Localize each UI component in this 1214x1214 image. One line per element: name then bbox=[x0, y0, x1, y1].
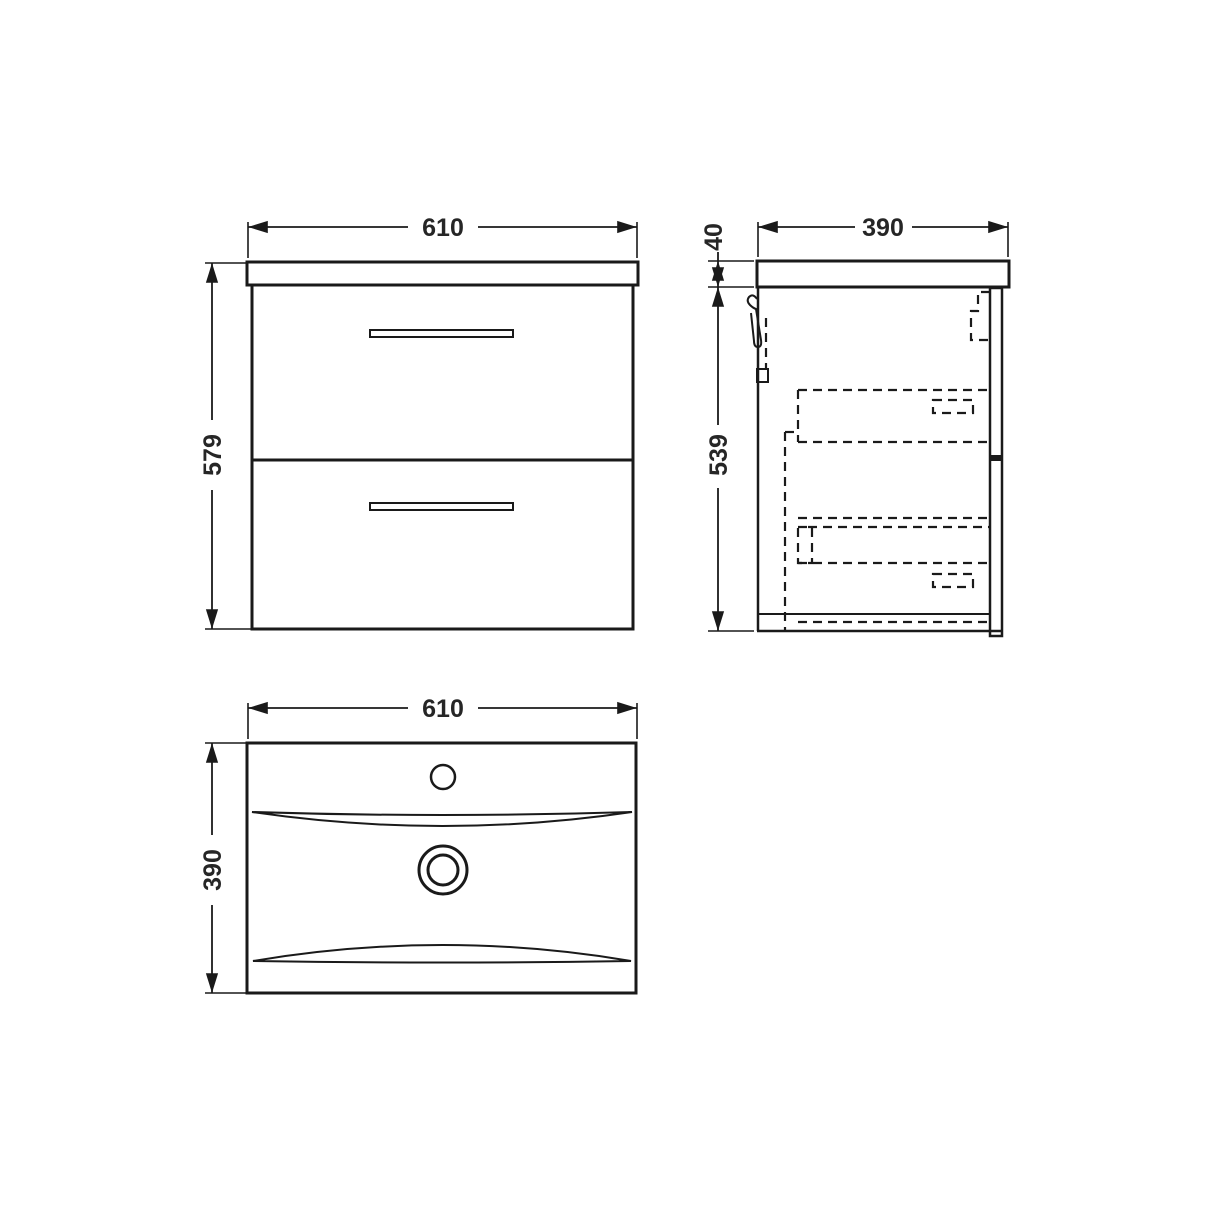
waste-hole-outer bbox=[419, 846, 467, 894]
hidden-drawer-handle-bottom bbox=[933, 574, 973, 587]
technical-drawing-page: 610 579 3 bbox=[0, 0, 1214, 1214]
tap-hole bbox=[431, 765, 455, 789]
hidden-drawer-outlines bbox=[785, 390, 990, 631]
counter-thickness-dimension: 40 bbox=[700, 223, 754, 287]
plan-width-dimension: 610 bbox=[248, 695, 637, 739]
front-height-label: 579 bbox=[199, 434, 227, 476]
hidden-drawer-handle-top bbox=[933, 400, 973, 413]
wall-bracket-hidden-outline bbox=[971, 292, 990, 340]
side-height-label: 539 bbox=[705, 434, 733, 476]
front-width-dimension: 610 bbox=[248, 214, 637, 258]
basin-outline bbox=[247, 743, 636, 993]
front-height-dimension: 579 bbox=[199, 263, 252, 629]
side-view: 390 40 539 bbox=[700, 214, 1009, 636]
side-countertop bbox=[757, 261, 1009, 287]
bowl-front-edge bbox=[252, 812, 632, 826]
vanity-unit-technical-drawing: 610 579 3 bbox=[0, 0, 1214, 1214]
hidden-drawer-runner bbox=[798, 527, 812, 563]
back-panel bbox=[990, 288, 1002, 636]
plan-view: 610 390 bbox=[199, 695, 637, 993]
plan-depth-label: 390 bbox=[199, 849, 227, 891]
side-cabinet-outline bbox=[757, 287, 1003, 631]
side-depth-dimension: 390 bbox=[758, 214, 1008, 257]
side-height-dimension: 539 bbox=[705, 287, 754, 631]
waste-hole-inner bbox=[428, 855, 458, 885]
back-panel-joint bbox=[990, 455, 1002, 461]
front-width-label: 610 bbox=[422, 214, 464, 242]
front-countertop bbox=[247, 262, 638, 285]
bottom-drawer-handle bbox=[370, 503, 513, 510]
front-view: 610 579 bbox=[199, 214, 638, 629]
top-drawer-handle bbox=[370, 330, 513, 337]
side-depth-label: 390 bbox=[862, 214, 904, 242]
plan-depth-dimension: 390 bbox=[199, 743, 247, 993]
counter-thickness-label: 40 bbox=[700, 223, 728, 251]
plan-width-label: 610 bbox=[422, 695, 464, 723]
bowl-rear-edge bbox=[253, 945, 631, 963]
